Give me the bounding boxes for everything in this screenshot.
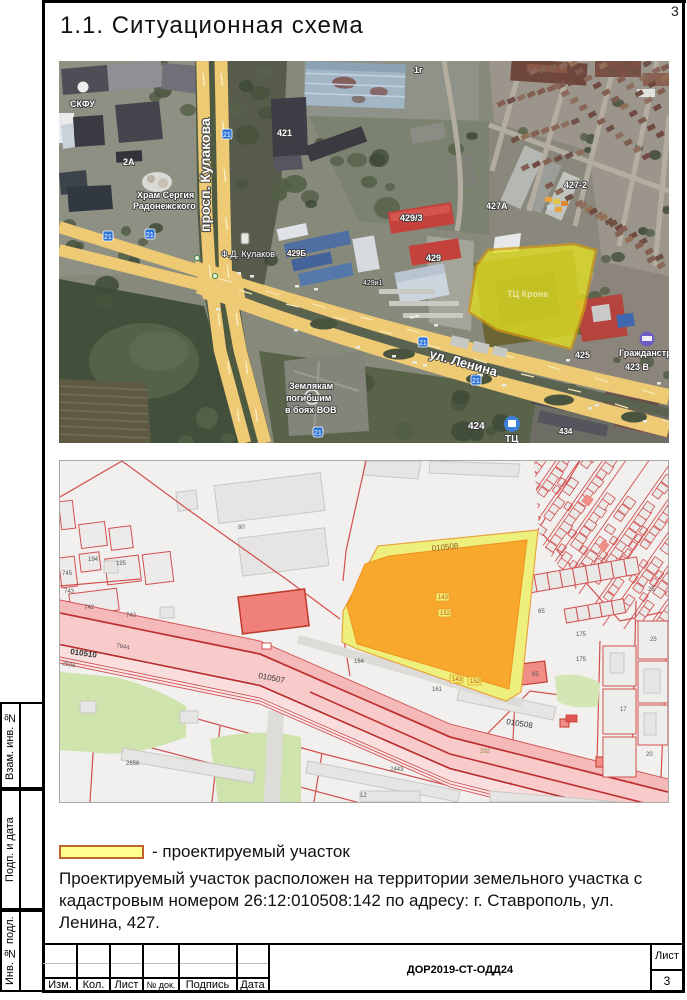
- svg-text:2443: 2443: [390, 767, 404, 773]
- svg-text:Гражданстр: Гражданстр: [619, 348, 669, 358]
- svg-text:12: 12: [360, 793, 367, 799]
- svg-text:21: 21: [146, 232, 154, 239]
- svg-text:21: 21: [314, 430, 322, 437]
- svg-text:просп. Кулакова: просп. Кулакова: [197, 118, 213, 232]
- svg-text:17: 17: [620, 707, 627, 713]
- svg-text:2А: 2А: [123, 157, 135, 167]
- svg-text:427А: 427А: [486, 201, 508, 211]
- svg-text:СКФУ: СКФУ: [70, 99, 95, 109]
- svg-text:164: 164: [354, 659, 365, 665]
- svg-text:143: 143: [438, 595, 449, 601]
- svg-text:292: 292: [480, 749, 491, 755]
- svg-text:20: 20: [646, 752, 653, 758]
- svg-text:1г: 1г: [414, 65, 423, 75]
- svg-text:ТЦ Кроне: ТЦ Кроне: [507, 289, 549, 299]
- svg-text:425: 425: [575, 350, 590, 360]
- svg-text:745: 745: [62, 571, 73, 577]
- svg-text:Храм Сергия: Храм Сергия: [137, 190, 194, 200]
- svg-text:21: 21: [419, 340, 427, 347]
- svg-text:421: 421: [277, 128, 292, 138]
- svg-text:65: 65: [538, 609, 545, 615]
- svg-text:429/3: 429/3: [400, 213, 423, 223]
- svg-text:175: 175: [576, 657, 587, 663]
- svg-text:21: 21: [223, 132, 231, 139]
- svg-text:Радонежского: Радонежского: [133, 201, 196, 211]
- svg-text:429Б: 429Б: [287, 249, 306, 258]
- svg-text:в боях ВОВ: в боях ВОВ: [285, 405, 337, 415]
- svg-text:743: 743: [64, 589, 75, 595]
- svg-text:Землякам: Землякам: [289, 381, 334, 391]
- svg-text:427-2: 427-2: [564, 180, 587, 190]
- svg-text:742: 742: [126, 613, 137, 619]
- svg-text:742: 742: [84, 605, 95, 611]
- svg-text:Ф.Д. Кулаков: Ф.Д. Кулаков: [221, 249, 275, 259]
- svg-text:434: 434: [559, 427, 573, 436]
- svg-text:65: 65: [532, 672, 539, 678]
- svg-text:195: 195: [116, 561, 127, 567]
- svg-text:429: 429: [426, 253, 441, 263]
- svg-text:25: 25: [650, 637, 657, 643]
- svg-text:21: 21: [104, 234, 112, 241]
- svg-text:ТЦ: ТЦ: [505, 434, 519, 443]
- svg-text:194: 194: [88, 557, 99, 563]
- svg-text:погибшим: погибшим: [286, 393, 332, 403]
- svg-text:152: 152: [440, 611, 451, 617]
- svg-text:424: 424: [468, 421, 485, 432]
- svg-text:429и1: 429и1: [363, 280, 383, 287]
- svg-text:143: 143: [452, 677, 463, 683]
- svg-text:152: 152: [470, 679, 481, 685]
- svg-text:2656: 2656: [126, 761, 140, 767]
- svg-text:423 В: 423 В: [625, 362, 650, 372]
- svg-text:21: 21: [472, 378, 480, 385]
- svg-text:25: 25: [648, 587, 655, 593]
- svg-text:175: 175: [576, 632, 587, 638]
- svg-text:80: 80: [238, 525, 245, 531]
- svg-text:161: 161: [432, 687, 443, 693]
